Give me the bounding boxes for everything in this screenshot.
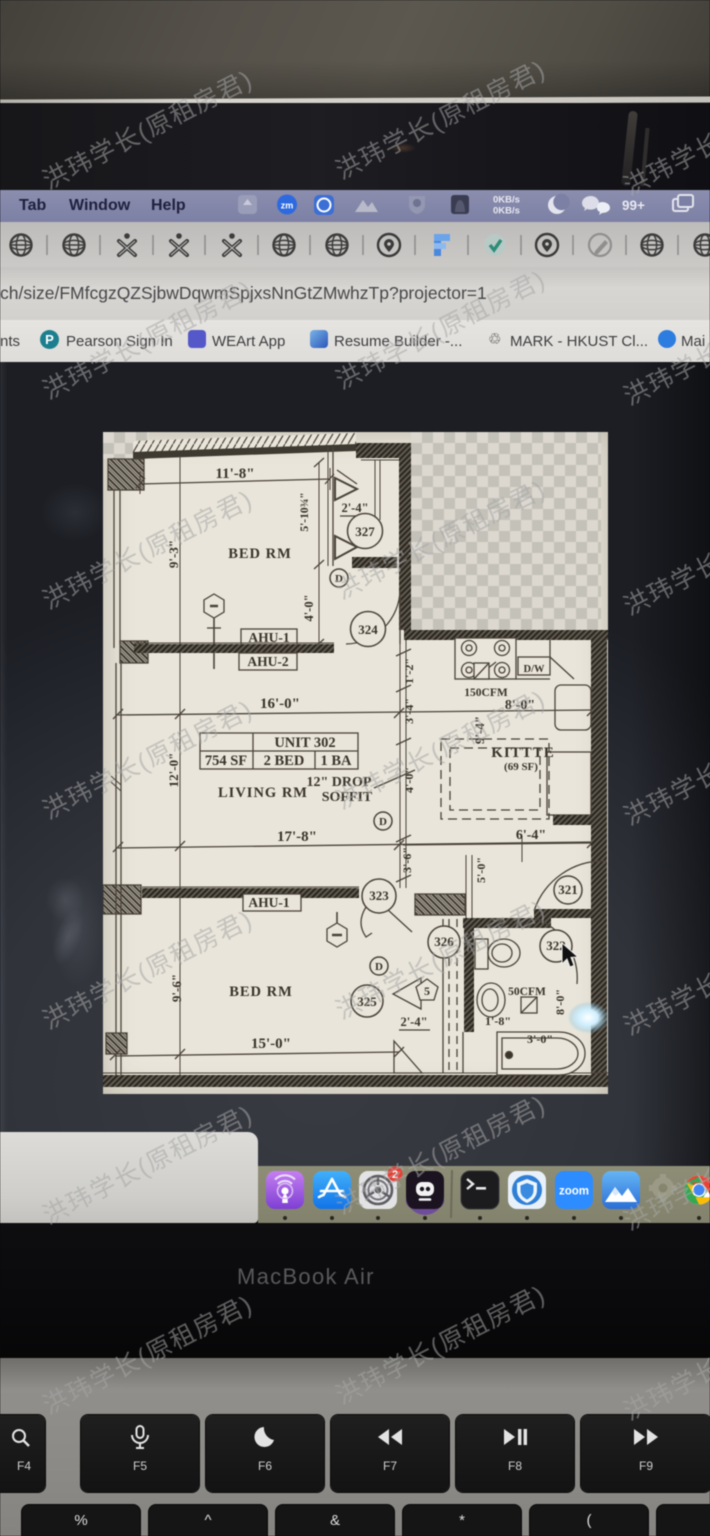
svg-text:AHU-2: AHU-2 [247,654,288,669]
svg-text:323: 323 [369,888,389,903]
svg-text:5'-0": 5'-0" [474,857,488,883]
svg-text:4'-0": 4'-0" [302,594,316,621]
svg-text:1'-2": 1'-2" [402,658,416,684]
svg-text:BED RM: BED RM [229,984,293,1000]
svg-text:0KB/s: 0KB/s [493,195,520,206]
svg-text:8'-0": 8'-0" [553,989,567,1015]
svg-text:3'-4": 3'-4" [402,698,416,724]
svg-text:zoom: zoom [559,1186,589,1198]
svg-text:LIVING RM: LIVING RM [218,785,308,801]
svg-text:321: 321 [558,882,578,897]
svg-text:11'-8": 11'-8" [215,466,254,482]
svg-text:754 SF: 754 SF [205,753,247,769]
svg-text:6'-4": 6'-4" [516,828,546,843]
svg-text:327: 327 [355,524,375,539]
svg-text:4'-0": 4'-0" [402,767,416,793]
svg-text:326: 326 [434,934,454,949]
svg-text:AHU-1: AHU-1 [248,895,289,910]
svg-text:16'-0": 16'-0" [260,696,300,712]
svg-text:8'-0": 8'-0" [505,698,535,713]
svg-text:2'-4": 2'-4" [400,1015,427,1029]
svg-text:SOFFIT: SOFFIT [322,790,373,805]
svg-text:9'-3": 9'-3" [166,540,181,568]
svg-text:325: 325 [357,994,377,1009]
svg-text:0KB/s: 0KB/s [493,206,520,217]
svg-text:(69 SF): (69 SF) [504,761,538,773]
svg-text:D: D [375,961,383,973]
svg-text:2'-4": 2'-4" [341,501,368,515]
svg-text:3'-0": 3'-0" [527,1032,553,1046]
svg-text:D: D [335,573,343,585]
svg-text:UNIT 302: UNIT 302 [274,735,335,751]
svg-text:KITTTE: KITTTE [491,745,555,761]
svg-text:1 BA: 1 BA [320,753,352,769]
svg-text:12'-0": 12'-0" [166,753,181,788]
svg-text:2 BED: 2 BED [264,753,305,769]
svg-text:324: 324 [358,622,378,637]
svg-text:17'-8": 17'-8" [277,829,317,845]
svg-text:2: 2 [392,1169,398,1181]
svg-text:zm: zm [281,201,294,211]
svg-text:150CFM: 150CFM [464,687,508,699]
svg-text:D: D [379,816,387,828]
svg-text:5: 5 [424,984,430,998]
svg-text:1'-8": 1'-8" [485,1014,511,1028]
svg-text:BED RM: BED RM [228,546,292,562]
svg-text:15'-0": 15'-0" [251,1036,291,1052]
svg-text:AHU-1: AHU-1 [248,630,289,645]
svg-text:9'-6": 9'-6" [169,974,184,1002]
svg-text:5'-10¾": 5'-10¾" [299,492,311,531]
svg-text:12" DROP: 12" DROP [307,775,372,790]
svg-text:50CFM: 50CFM [508,986,546,998]
svg-text:9'-4": 9'-4" [472,716,487,744]
svg-text:D/W: D/W [524,664,546,675]
svg-text:99+: 99+ [622,198,645,213]
svg-text:3'-6": 3'-6" [400,847,414,873]
